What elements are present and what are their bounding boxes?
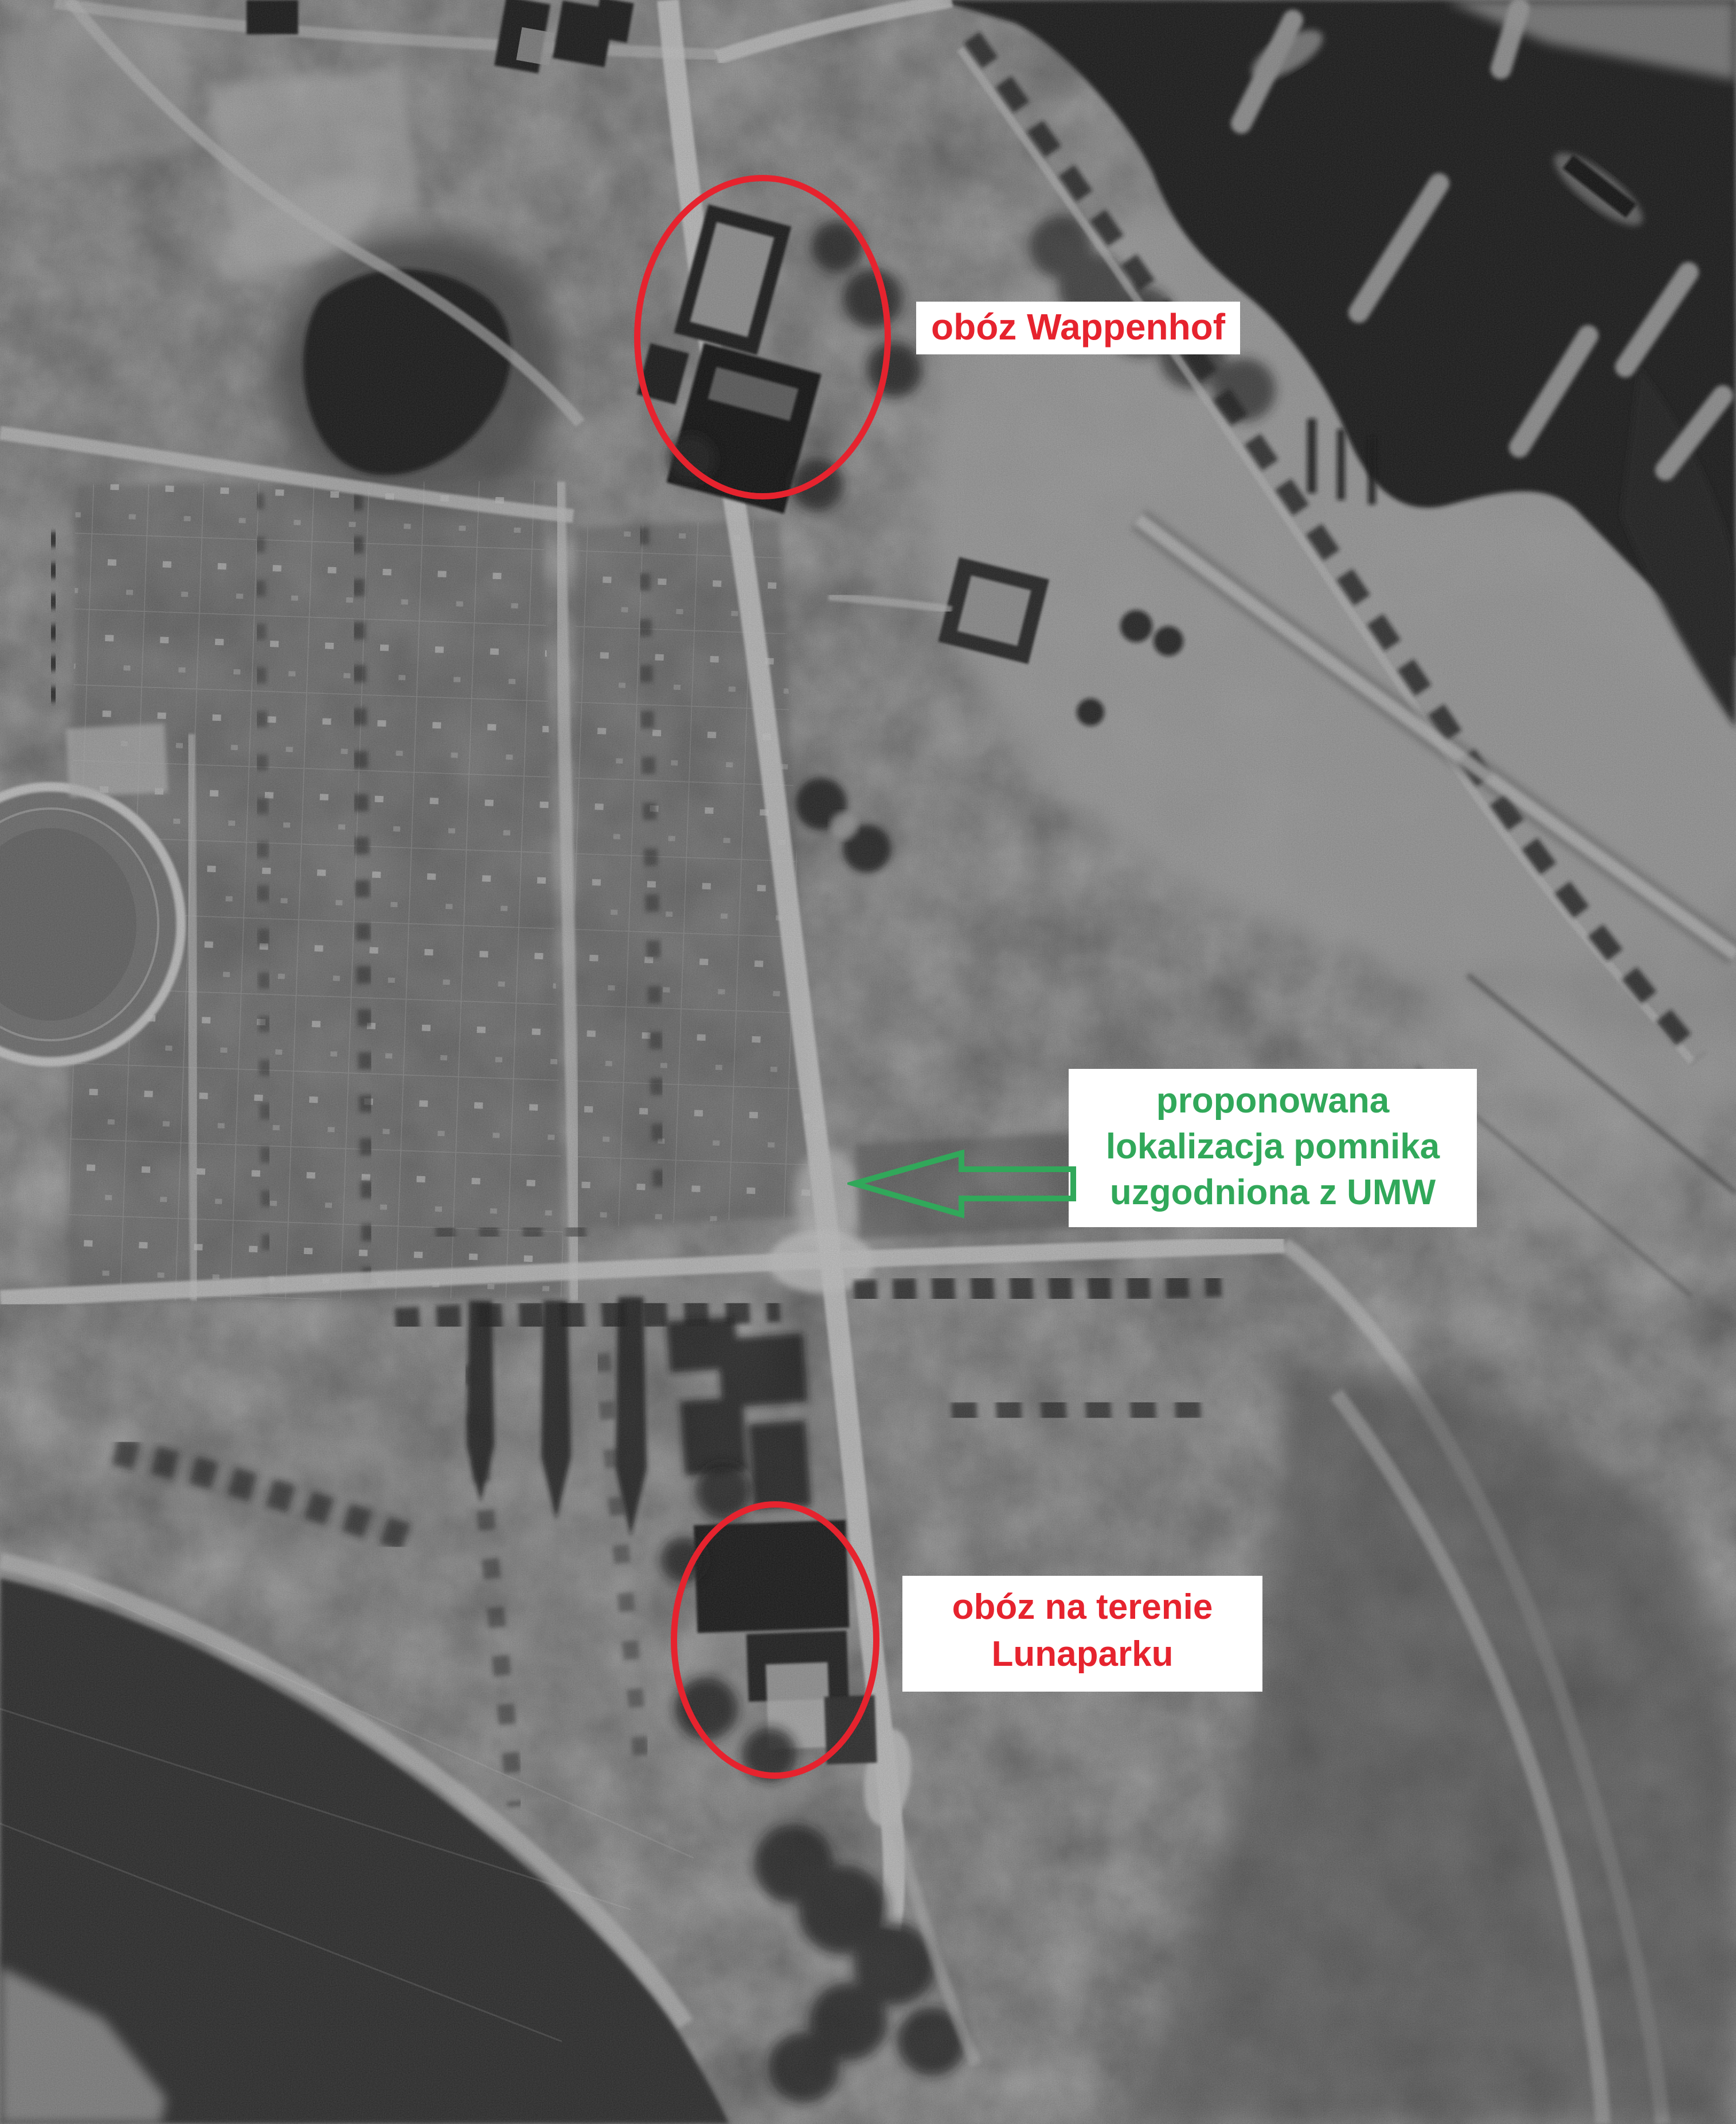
lunapark-label: obóz na terenie Lunaparku xyxy=(902,1576,1262,1692)
wappenhof-label: obóz Wappenhof xyxy=(916,302,1240,354)
monument-location-arrow-icon xyxy=(847,1146,1079,1221)
monument-label: proponowana lokalizacja pomnika uzgodnio… xyxy=(1069,1069,1477,1227)
wappenhof-camp-circle xyxy=(634,175,891,499)
annotated-aerial-photo: obóz Wappenhof proponowana lokalizacja p… xyxy=(0,0,1736,2124)
monument-label-line3: uzgodniona z UMW xyxy=(1069,1170,1477,1216)
lunapark-label-line1: obóz na terenie xyxy=(902,1584,1262,1631)
lunapark-label-line2: Lunaparku xyxy=(902,1631,1262,1678)
lunapark-camp-circle xyxy=(671,1501,879,1779)
monument-label-line2: lokalizacja pomnika xyxy=(1069,1124,1477,1170)
monument-label-line1: proponowana xyxy=(1069,1078,1477,1124)
